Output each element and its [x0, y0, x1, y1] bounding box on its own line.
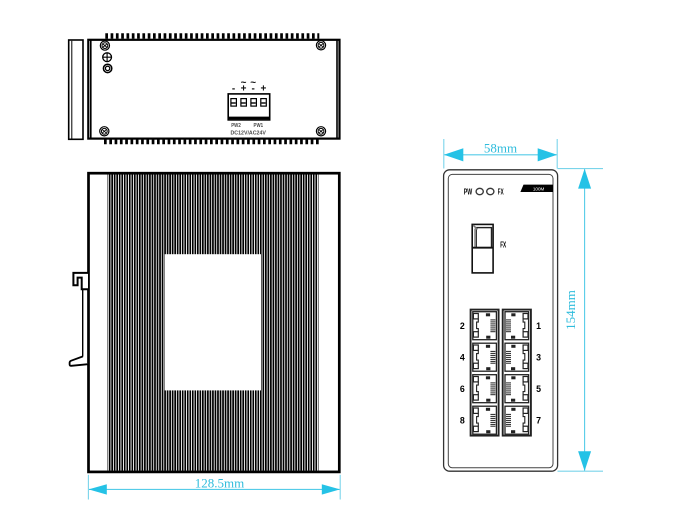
svg-text:4: 4 — [460, 353, 465, 363]
svg-text:~: ~ — [250, 78, 256, 89]
svg-text:7: 7 — [536, 416, 541, 426]
svg-text:128.5mm: 128.5mm — [195, 476, 244, 491]
svg-text:FX: FX — [500, 240, 506, 249]
svg-text:58mm: 58mm — [484, 140, 517, 155]
svg-text:PW: PW — [464, 188, 473, 197]
svg-text:8: 8 — [460, 416, 465, 426]
svg-text:~: ~ — [241, 78, 247, 89]
svg-text:+: + — [260, 84, 266, 95]
svg-text:DC12V/AC24V: DC12V/AC24V — [231, 131, 267, 137]
svg-text:PW2: PW2 — [231, 123, 241, 129]
svg-text:FX: FX — [498, 188, 504, 197]
svg-text:154mm: 154mm — [563, 290, 578, 330]
svg-text:2: 2 — [460, 321, 465, 331]
svg-text:3: 3 — [536, 353, 541, 363]
svg-text:-: - — [232, 84, 235, 95]
svg-text:6: 6 — [460, 384, 465, 394]
svg-text:100M: 100M — [533, 186, 545, 191]
svg-text:1: 1 — [536, 321, 541, 331]
svg-text:5: 5 — [536, 384, 541, 394]
svg-text:PW1: PW1 — [254, 123, 264, 129]
